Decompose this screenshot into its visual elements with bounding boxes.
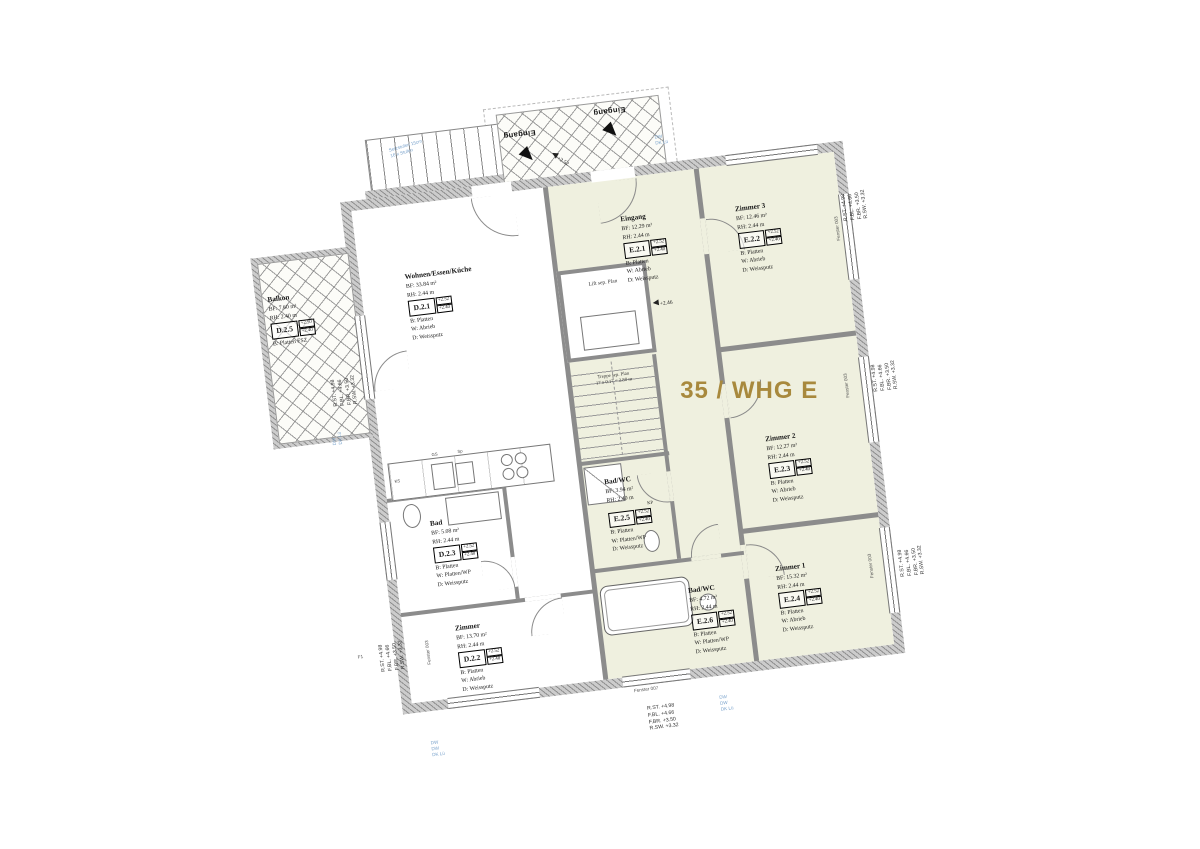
blue-annotation: DWDWDK Lü [719, 693, 734, 712]
window-tag: Fenster 003 [405, 630, 450, 675]
window-tag-text: Fenster 007 [634, 685, 659, 693]
window-tag-text: Fenster 003 [842, 373, 850, 398]
f1-label: F1 [357, 654, 363, 660]
room-info-E23: Zimmer 2 BF: 12.27 m² RH: 2.44 m E.2.3 +… [765, 426, 841, 505]
room-code: D.2.5 [270, 321, 298, 340]
appliance-label-gs: GS [431, 451, 438, 457]
room-code: E.2.6 [691, 612, 719, 631]
window-tag: Fenster 003 [815, 206, 860, 251]
blue-line: DK Lü [336, 431, 343, 444]
elevation-annotation: R.ST. +4.98F.BL. +4.66F.BR. +3.50R.SW. +… [890, 538, 935, 583]
room-code: E.2.4 [778, 590, 806, 609]
floor-plan-sheet: Setzstufen 15cm 16 x Stufen Eingang Eing… [0, 0, 1200, 849]
room-info-E25: Bad/WC BF: 3.94 m² RH: 2.40 m KP E.2.5 +… [604, 469, 681, 554]
window-tag-text: Fenster 003 [424, 640, 432, 665]
window-tag: Fenster 003 [848, 543, 893, 588]
level-value: +2.46 [660, 300, 673, 308]
level-value: +2.52 [556, 156, 570, 168]
elevation-annotation: R.ST. +4.98F.BL. +4.66F.BR. +3.50R.SW. +… [323, 368, 368, 413]
room-info-E24: Zimmer 1 BF: 15.32 m² RH: 2.44 m E.2.4 +… [775, 556, 851, 635]
elevation-annotation: R.ST. +4.98F.BL. +4.66F.BR. +3.50R.SW. +… [863, 353, 908, 398]
window-tag-text: Fenster 003 [866, 553, 874, 578]
level-marker-246: +2.46 [652, 291, 674, 311]
room-info-D21: Wohnen/Essen/Küche BF: 33.84 m² RH: 2.44… [404, 264, 480, 343]
blue-line: DK Lü [720, 705, 733, 712]
room-code: D.2.2 [458, 649, 486, 668]
room-code: E.2.3 [768, 460, 796, 479]
appliance-label-sp: Sp [457, 448, 463, 454]
blue-annotation: DWDWDK Lü [430, 739, 445, 758]
room-code: E.2.2 [738, 230, 766, 249]
room-info-E26: Bad/WC BF: 4.72 m² RH: 2.44 m E.2.6 +2.5… [688, 578, 764, 657]
elevation-annotation: R.ST. +4.98F.BL. +4.66F.BR. +3.50R.SW. +… [647, 702, 679, 732]
room-info-D25: Balkon BF: 7.60 m² RH: 2.40 m D.2.5 +2.5… [267, 287, 341, 349]
kitchen-sink [431, 462, 456, 490]
lift-car [580, 310, 640, 351]
bath-tub-inner [603, 580, 690, 632]
floor-plan: Setzstufen 15cm 16 x Stufen Eingang Eing… [296, 102, 944, 758]
blue-annotation: DWDK Lü [315, 416, 360, 461]
room-code: E.2.1 [623, 240, 651, 259]
room-info-E22: Zimmer 3 BF: 12.46 m² RH: 2.44 m E.2.2 +… [734, 196, 810, 275]
kitchen-sink-bowl [455, 461, 476, 485]
blue-line: DK Lü [432, 751, 445, 758]
level-flag-icon [652, 299, 659, 306]
room-code: D.2.3 [433, 545, 461, 564]
window-tag: Fenster 003 [824, 363, 869, 408]
appliance-label-ks: KS [394, 478, 400, 484]
blue-annotation: DWDK Lü [654, 133, 668, 146]
room-info-E21: Eingang BF: 12.29 m² RH: 2.44 m E.2.1 +2… [620, 206, 696, 285]
apartment-title: 35 / WHG E [664, 379, 834, 403]
window-tag-text: Fenster 003 [833, 216, 841, 241]
room-info-D22: Zimmer BF: 13.70 m² RH: 2.44 m D.2.2 +2.… [454, 615, 530, 694]
room-code: D.2.1 [408, 298, 436, 317]
room-info-D23: Bad BF: 5.08 m² RH: 2.44 m D.2.3 +2.52+2… [429, 511, 505, 590]
